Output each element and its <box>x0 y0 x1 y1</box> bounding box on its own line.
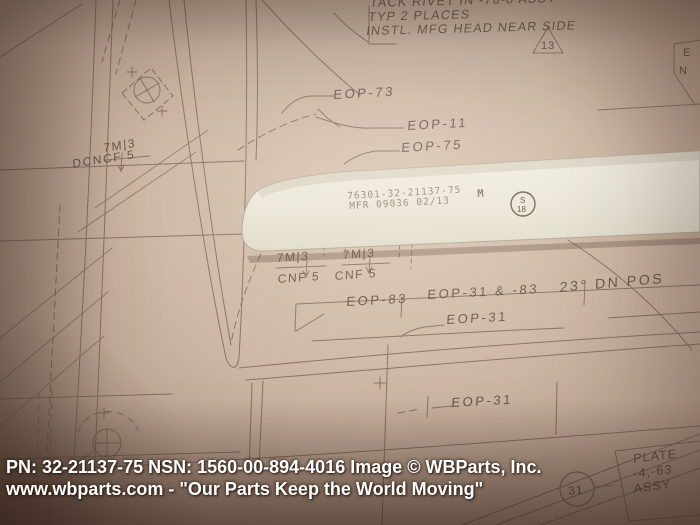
drawing-linework-svg: S 18 13 E N 31 <box>0 0 700 525</box>
tack-rivet-note: TACK RIVET IN -76-8 ASSY TYP 2 PLACES IN… <box>365 0 581 38</box>
inspection-stamp-bottom: 18 <box>517 205 526 214</box>
label-cnf5-a: CNF 5 <box>278 269 321 286</box>
inspection-stamp-top: S <box>520 196 525 205</box>
drawing-lines <box>0 0 700 525</box>
caption-line-1: PN: 32-21137-75 NSN: 1560-00-894-4016 Im… <box>6 456 542 478</box>
balloon-31-text: 31 <box>567 482 584 498</box>
flag-13-text: 13 <box>541 40 555 52</box>
product-photo: S 18 13 E N 31 TACK RIVET IN -76-8 ASSY … <box>0 0 700 525</box>
caption-line-2: www.wbparts.com - "Our Parts Keep the Wo… <box>6 478 542 500</box>
corner-letter-n: N <box>679 65 687 77</box>
dashed-diamond <box>122 68 173 120</box>
label-cnf5-b: CNF 5 <box>335 266 378 283</box>
plate-callout-box: PLATE -4,-63 ASSY <box>633 447 678 497</box>
part-strip-group: S 18 <box>242 151 700 263</box>
part-suffix-marking: M <box>477 188 485 200</box>
hatch-lines <box>0 130 208 426</box>
corner-letter-e: E <box>683 47 690 59</box>
label-eop-11: EOP-11 <box>407 115 469 133</box>
flag-7m3-b: 7M|3 <box>343 246 376 262</box>
flag-7m3-a: 7M|3 <box>277 249 310 265</box>
watermark-caption: PN: 32-21137-75 NSN: 1560-00-894-4016 Im… <box>6 456 542 500</box>
